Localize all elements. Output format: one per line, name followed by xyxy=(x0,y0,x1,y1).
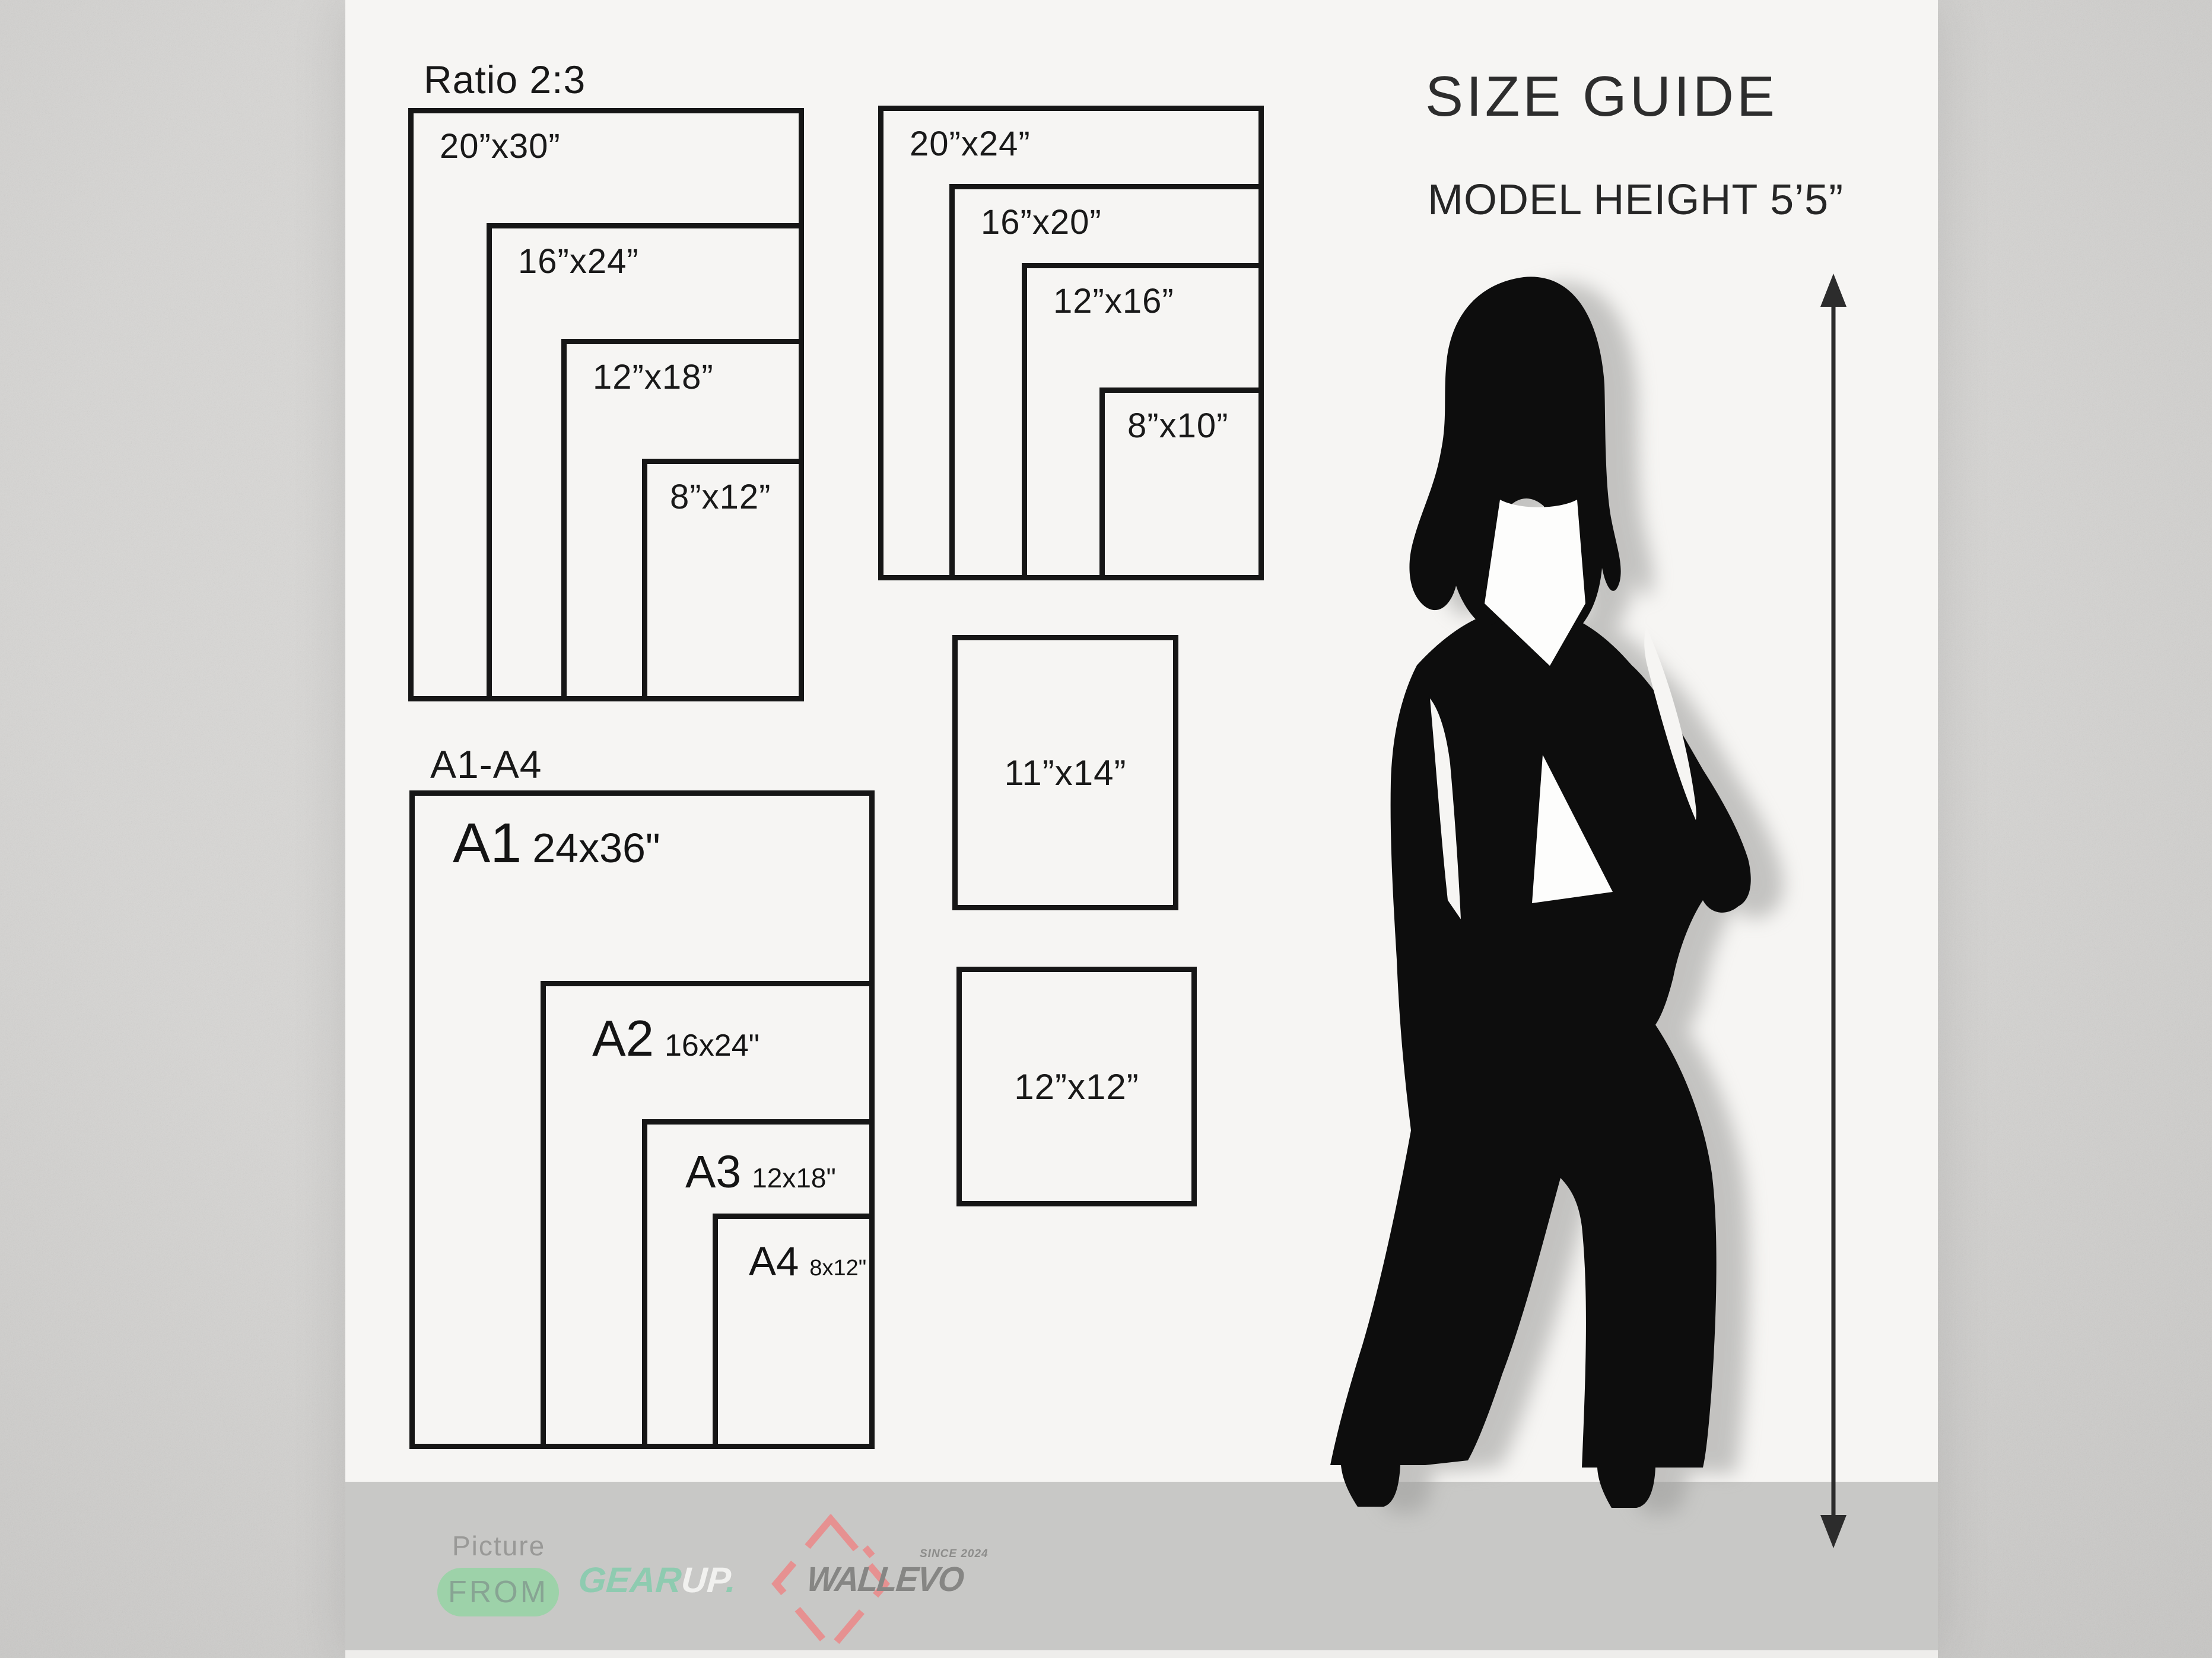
arrow-up-icon xyxy=(1820,274,1846,307)
footer-bottom-edge xyxy=(345,1650,1938,1658)
from-badge-text: FROM xyxy=(448,1574,548,1610)
size-box-a4: A4 8x12" xyxy=(713,1214,875,1449)
size-label: 8”x12” xyxy=(670,477,771,517)
size-box-11x14: 11”x14” xyxy=(952,635,1178,910)
model-height-label: MODEL HEIGHT 5’5” xyxy=(1428,176,1844,224)
a2-size: 16x24" xyxy=(665,1028,759,1063)
size-label: 12”x18” xyxy=(593,357,714,397)
arrow-down-icon xyxy=(1820,1515,1846,1548)
wallevo-logo: WALLEVO SINCE 2024 xyxy=(771,1514,1026,1657)
size-label: 20”x30” xyxy=(440,126,561,166)
a1-code: A1 xyxy=(453,811,522,876)
a1-size: 24x36" xyxy=(532,824,660,872)
picture-label: Picture xyxy=(452,1530,545,1562)
a4-label: A4 8x12" xyxy=(749,1238,866,1285)
a3-size: 12x18" xyxy=(752,1162,836,1194)
size-chart-ratio-2-3: 20”x30” 16”x24” 12”x18” 8”x12” xyxy=(408,108,804,701)
size-chart-standard: 20”x24” 16”x20” 12”x16” 8”x10” xyxy=(878,106,1264,580)
a3-code: A3 xyxy=(685,1146,741,1199)
wallevo-since-text: SINCE 2024 xyxy=(920,1548,989,1561)
height-arrow-icon xyxy=(1804,270,1863,1552)
size-chart-a-series: A1 24x36" A2 16x24" A3 12x18" A4 8x12" xyxy=(409,790,875,1449)
a2-label: A2 16x24" xyxy=(592,1010,759,1068)
wallevo-logo-text: WALLEVO xyxy=(805,1559,965,1599)
ratio-2-3-heading: Ratio 2:3 xyxy=(424,57,586,102)
a1-label: A1 24x36" xyxy=(453,811,660,876)
a2-code: A2 xyxy=(592,1010,654,1068)
gearup-logo-part1: GEAR xyxy=(577,1560,683,1600)
gearup-logo-part2: UP xyxy=(680,1560,727,1600)
size-box-8x10: 8”x10” xyxy=(1099,387,1264,580)
size-label: 12”x16” xyxy=(1053,281,1174,321)
size-label: 11”x14” xyxy=(1005,752,1127,793)
from-badge: FROM xyxy=(437,1568,559,1616)
size-guide-title: SIZE GUIDE xyxy=(1425,64,1778,129)
a3-label: A3 12x18" xyxy=(685,1146,836,1199)
gearup-logo: GEARUP. xyxy=(577,1559,738,1600)
size-label: 20”x24” xyxy=(910,124,1031,164)
size-box-12x12: 12”x12” xyxy=(956,967,1197,1206)
a4-code: A4 xyxy=(749,1238,799,1285)
a-series-heading: A1-A4 xyxy=(430,742,542,787)
size-label: 8”x10” xyxy=(1127,406,1228,446)
a4-size: 8x12" xyxy=(809,1256,866,1281)
size-label: 12”x12” xyxy=(1014,1066,1139,1107)
model-silhouette xyxy=(1323,271,1786,1541)
size-box-8x12: 8”x12” xyxy=(642,459,804,701)
size-label: 16”x24” xyxy=(518,242,639,281)
size-label: 16”x20” xyxy=(981,202,1102,242)
